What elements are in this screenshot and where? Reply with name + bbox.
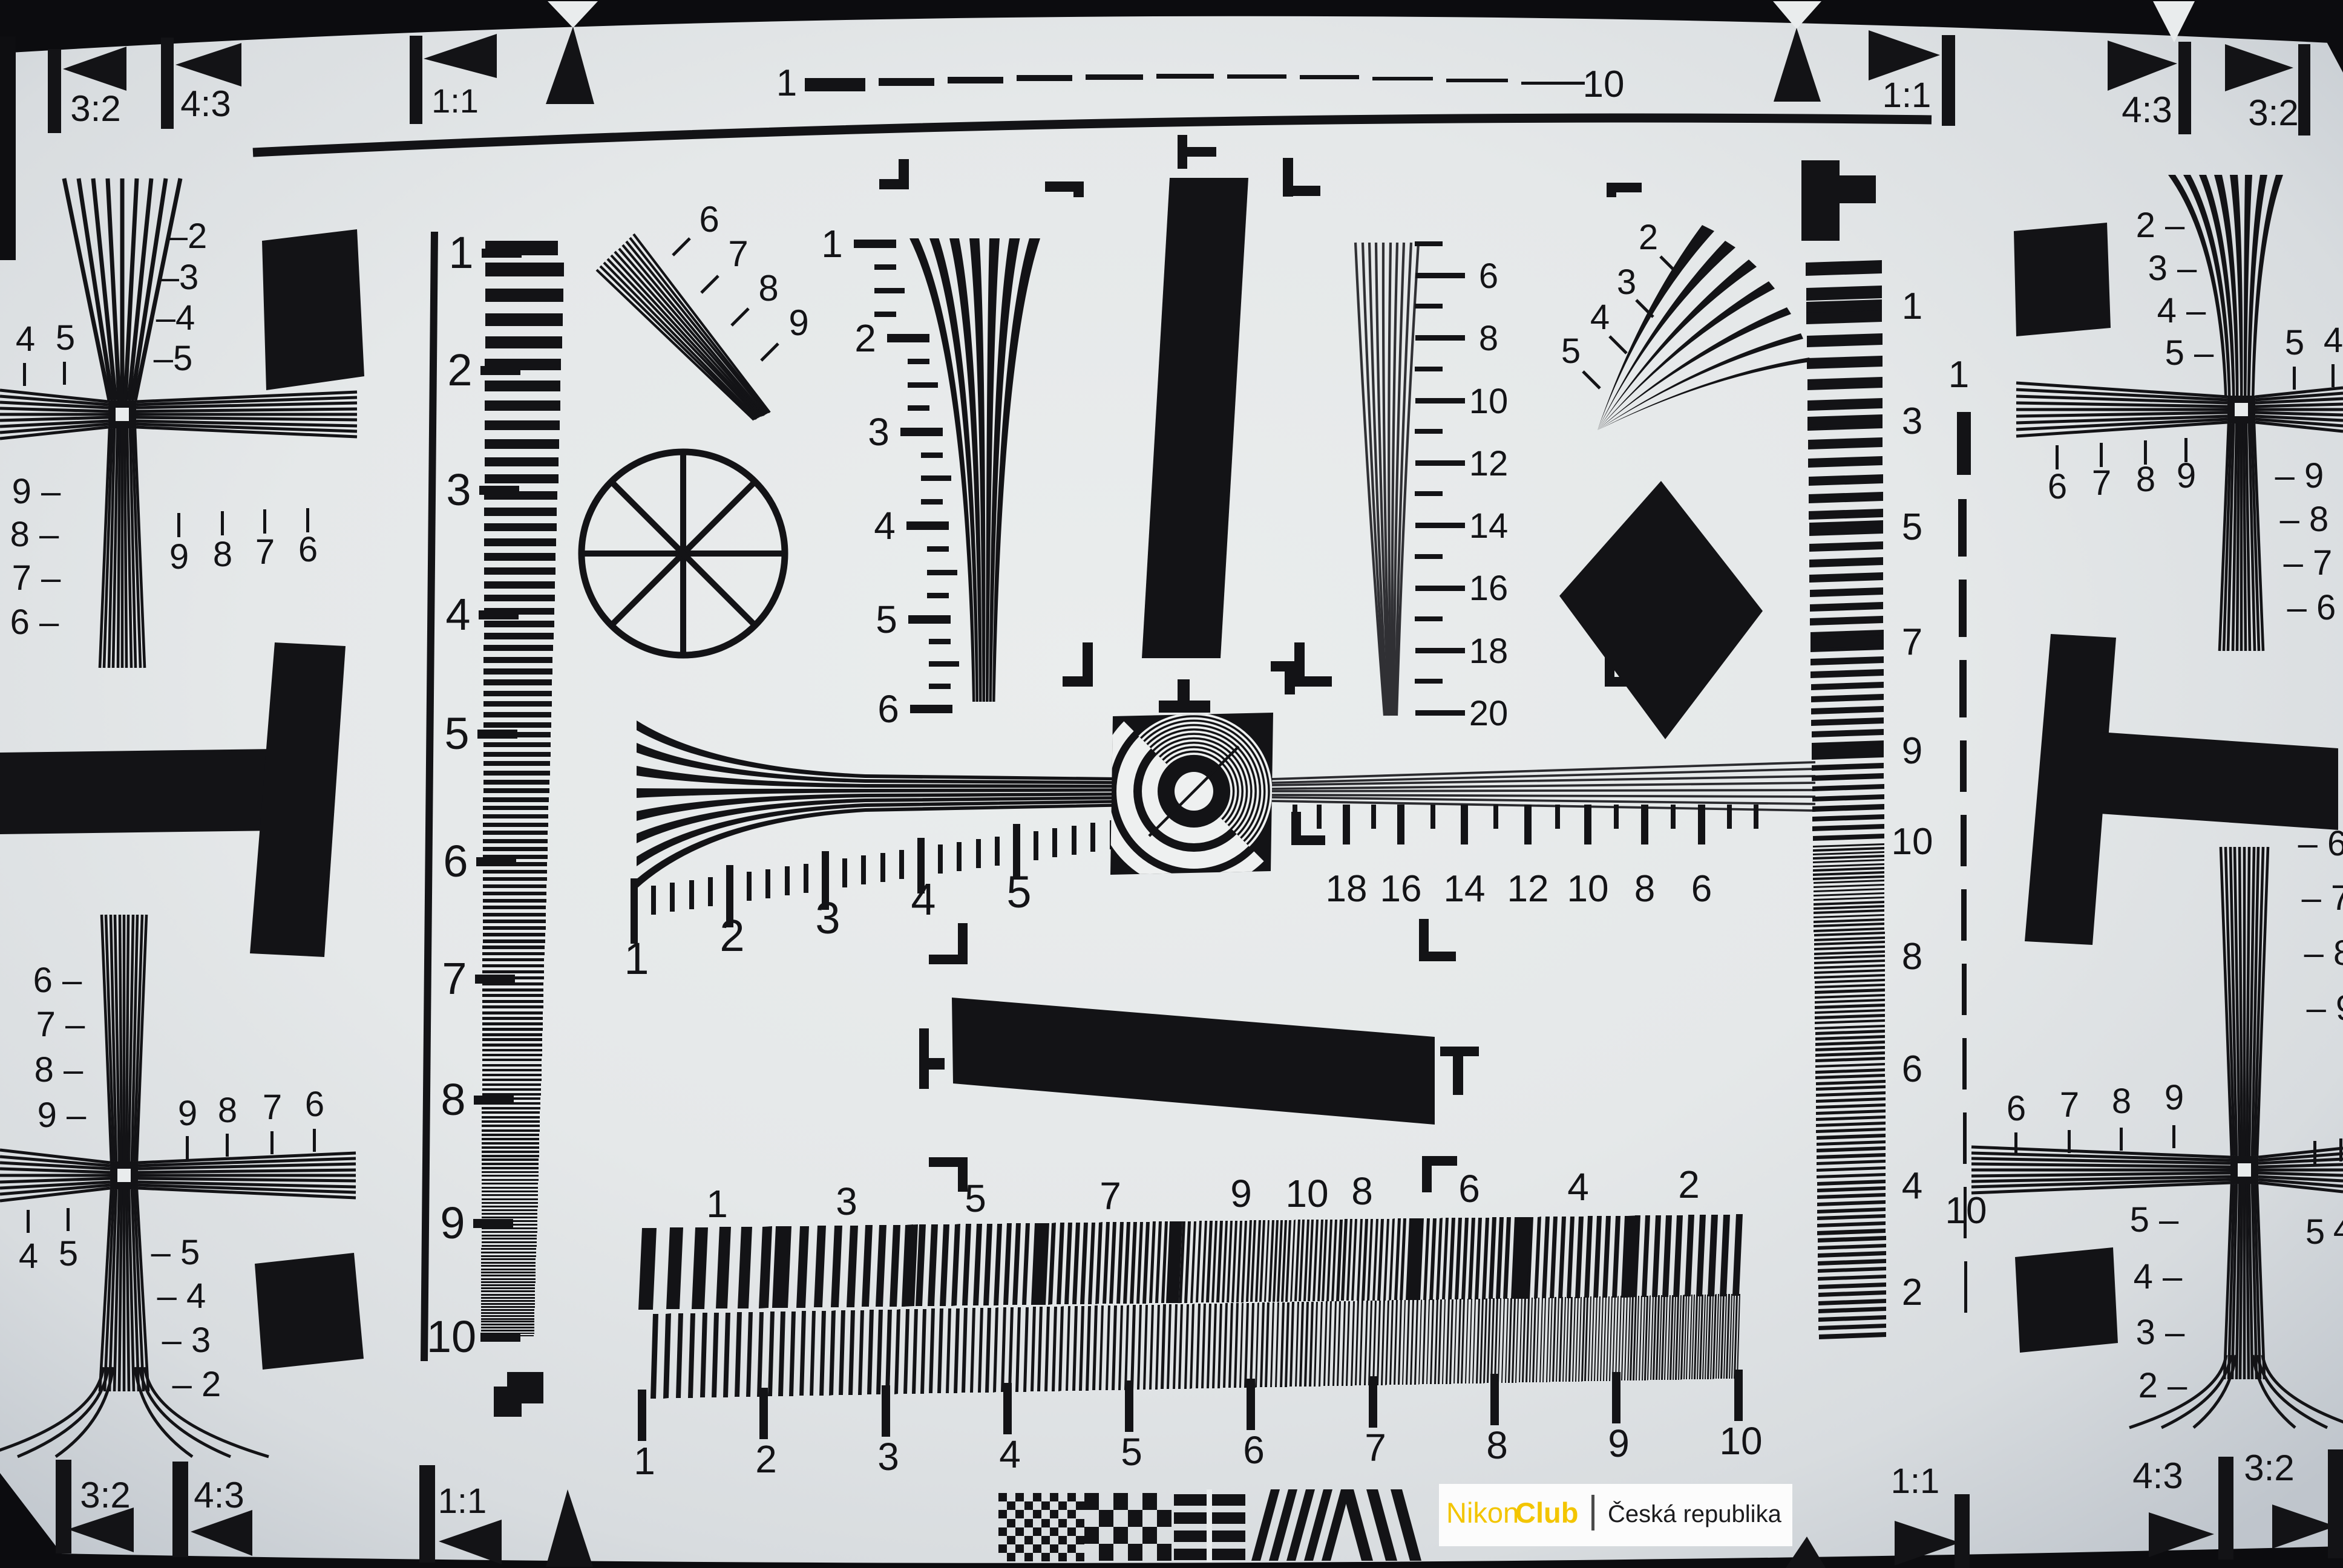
svg-text:4 –: 4 – <box>2134 1257 2183 1296</box>
svg-text:9: 9 <box>1230 1172 1252 1215</box>
svg-text:20: 20 <box>1469 694 1509 733</box>
svg-text:– 3: – 3 <box>162 1321 211 1360</box>
svg-text:2: 2 <box>755 1437 777 1481</box>
svg-text:4: 4 <box>911 874 936 924</box>
svg-text:2 –: 2 – <box>2138 1366 2187 1405</box>
svg-text:– 5: – 5 <box>151 1233 200 1272</box>
svg-text:5: 5 <box>1902 506 1922 548</box>
svg-text:6: 6 <box>2007 1089 2026 1128</box>
svg-text:5: 5 <box>56 318 75 358</box>
svg-text:10: 10 <box>1583 64 1625 105</box>
svg-text:10: 10 <box>1285 1172 1328 1215</box>
svg-text:18: 18 <box>1326 868 1368 910</box>
svg-text:7: 7 <box>1902 621 1922 663</box>
svg-text:6: 6 <box>1479 256 1498 296</box>
svg-text:– 8: – 8 <box>2280 500 2329 539</box>
svg-text:5 –: 5 – <box>2165 333 2214 373</box>
svg-text:18: 18 <box>1469 632 1509 671</box>
svg-text:4:3: 4:3 <box>2132 1455 2183 1496</box>
svg-text:1: 1 <box>776 62 797 104</box>
svg-text:–4: –4 <box>156 298 195 338</box>
svg-text:10: 10 <box>1567 868 1609 910</box>
svg-text:8: 8 <box>1351 1169 1373 1213</box>
svg-text:14: 14 <box>1469 506 1509 546</box>
svg-text:6: 6 <box>1691 868 1712 910</box>
svg-text:5 –: 5 – <box>2130 1200 2179 1240</box>
svg-text:7: 7 <box>263 1088 282 1127</box>
svg-text:9: 9 <box>178 1094 197 1133</box>
svg-text:6: 6 <box>877 687 899 731</box>
svg-text:6: 6 <box>443 836 468 886</box>
svg-text:7: 7 <box>2060 1085 2079 1125</box>
svg-text:4 –: 4 – <box>2157 291 2206 330</box>
svg-text:4: 4 <box>999 1432 1021 1476</box>
svg-text:6 –: 6 – <box>33 961 82 1000</box>
svg-text:8: 8 <box>2112 1082 2131 1121</box>
svg-text:–2: –2 <box>168 217 208 256</box>
svg-text:8: 8 <box>1634 868 1655 910</box>
svg-text:4: 4 <box>1567 1165 1589 1209</box>
svg-text:– 8: – 8 <box>2304 933 2343 973</box>
svg-text:3: 3 <box>836 1180 857 1223</box>
svg-text:1:1: 1:1 <box>438 1481 487 1521</box>
svg-text:16: 16 <box>1469 569 1509 608</box>
svg-text:9: 9 <box>440 1198 465 1248</box>
svg-text:– 6: – 6 <box>2298 824 2343 863</box>
svg-text:2: 2 <box>854 316 876 360</box>
svg-text:8: 8 <box>1486 1423 1508 1467</box>
svg-text:8: 8 <box>1479 319 1498 358</box>
svg-text:– 7: – 7 <box>2302 878 2343 918</box>
svg-text:–3: –3 <box>160 258 199 297</box>
svg-text:6: 6 <box>298 530 318 569</box>
svg-text:14: 14 <box>1444 868 1486 910</box>
svg-text:6 –: 6 – <box>10 603 59 642</box>
svg-text:– 6: – 6 <box>2287 588 2336 627</box>
svg-text:3: 3 <box>1617 263 1636 302</box>
svg-text:1: 1 <box>1902 286 1922 327</box>
svg-text:6: 6 <box>1243 1428 1265 1472</box>
svg-text:8: 8 <box>2136 460 2155 499</box>
svg-text:7: 7 <box>442 953 467 1004</box>
svg-text:– 2: – 2 <box>172 1365 221 1404</box>
svg-text:4:3: 4:3 <box>180 83 231 124</box>
svg-text:3: 3 <box>1902 400 1922 442</box>
svg-text:5: 5 <box>444 708 469 759</box>
svg-text:–5: –5 <box>154 339 193 378</box>
svg-text:2: 2 <box>1678 1163 1700 1206</box>
svg-text:3:2: 3:2 <box>80 1475 130 1515</box>
svg-text:– 9: – 9 <box>2275 456 2324 495</box>
svg-text:3:2: 3:2 <box>2244 1448 2294 1488</box>
svg-text:– 9: – 9 <box>2307 988 2343 1028</box>
svg-text:7: 7 <box>1099 1174 1121 1218</box>
svg-text:9: 9 <box>1608 1422 1630 1465</box>
svg-text:12: 12 <box>1507 868 1549 910</box>
svg-text:2 –: 2 – <box>2136 206 2185 245</box>
svg-text:1: 1 <box>624 933 649 984</box>
svg-text:6: 6 <box>699 199 719 240</box>
svg-text:1: 1 <box>821 222 843 266</box>
svg-text:8 –: 8 – <box>34 1050 84 1089</box>
svg-text:1:1: 1:1 <box>1883 76 1932 115</box>
svg-text:7 –: 7 – <box>36 1005 85 1044</box>
svg-text:2: 2 <box>719 910 744 961</box>
svg-text:1: 1 <box>1948 354 1969 396</box>
svg-text:9: 9 <box>2164 1078 2184 1117</box>
svg-text:5: 5 <box>2285 323 2304 362</box>
svg-text:3 –: 3 – <box>2136 1313 2185 1352</box>
svg-text:10: 10 <box>1945 1190 1987 1232</box>
svg-text:1: 1 <box>448 227 473 278</box>
svg-text:4: 4 <box>874 504 896 547</box>
svg-text:5: 5 <box>59 1234 78 1273</box>
svg-text:4: 4 <box>445 589 470 639</box>
svg-text:– 7: – 7 <box>2284 543 2333 583</box>
svg-text:Nikon: Nikon <box>1446 1497 1519 1529</box>
svg-text:9: 9 <box>1902 730 1922 772</box>
svg-text:7: 7 <box>1365 1426 1386 1469</box>
svg-text:5: 5 <box>965 1177 986 1220</box>
svg-text:3: 3 <box>868 410 890 454</box>
svg-text:2: 2 <box>447 345 472 395</box>
svg-text:9 –: 9 – <box>12 472 61 511</box>
svg-text:3:2: 3:2 <box>2248 93 2298 133</box>
svg-text:9: 9 <box>788 302 808 343</box>
svg-text:6: 6 <box>1902 1048 1922 1090</box>
svg-text:4: 4 <box>19 1236 38 1276</box>
svg-text:4: 4 <box>16 319 35 359</box>
svg-text:7: 7 <box>255 532 275 572</box>
svg-text:5: 5 <box>1121 1430 1142 1474</box>
svg-text:9 –: 9 – <box>38 1096 87 1135</box>
svg-text:8: 8 <box>218 1091 237 1130</box>
svg-text:10: 10 <box>427 1312 476 1362</box>
svg-text:– 4: – 4 <box>157 1276 206 1316</box>
svg-text:1:1: 1:1 <box>431 82 479 120</box>
svg-text:4: 4 <box>2324 321 2343 360</box>
svg-text:3 –: 3 – <box>2148 249 2197 288</box>
svg-text:3: 3 <box>446 465 471 515</box>
svg-text:10: 10 <box>1469 382 1509 421</box>
svg-text:6: 6 <box>1458 1167 1480 1210</box>
svg-text:7 –: 7 – <box>12 558 61 598</box>
svg-text:5: 5 <box>1561 332 1581 371</box>
svg-text:2: 2 <box>1639 218 1658 257</box>
svg-text:5: 5 <box>1006 867 1031 917</box>
svg-text:1: 1 <box>706 1182 728 1226</box>
svg-text:12: 12 <box>1469 444 1509 483</box>
svg-text:6: 6 <box>2048 467 2067 506</box>
svg-text:5: 5 <box>2305 1212 2325 1252</box>
svg-text:4: 4 <box>2333 1210 2343 1249</box>
svg-text:5: 5 <box>876 598 897 641</box>
svg-text:8 –: 8 – <box>10 515 59 554</box>
svg-text:1: 1 <box>634 1439 655 1483</box>
svg-text:9: 9 <box>169 537 189 577</box>
svg-text:3: 3 <box>877 1435 899 1478</box>
svg-text:4: 4 <box>1902 1165 1922 1207</box>
svg-text:16: 16 <box>1380 868 1422 910</box>
svg-text:4:3: 4:3 <box>194 1475 244 1515</box>
svg-text:8: 8 <box>758 268 778 309</box>
svg-text:Club: Club <box>1515 1497 1578 1529</box>
svg-text:1:1: 1:1 <box>1891 1462 1940 1501</box>
svg-text:7: 7 <box>2092 463 2111 503</box>
svg-text:6: 6 <box>305 1085 324 1124</box>
svg-text:4: 4 <box>1590 298 1610 337</box>
svg-text:Česká republika: Česká republika <box>1608 1500 1782 1527</box>
svg-text:3:2: 3:2 <box>70 88 120 129</box>
svg-text:7: 7 <box>728 234 748 274</box>
svg-text:8: 8 <box>213 535 232 574</box>
svg-text:3: 3 <box>815 893 840 943</box>
svg-text:8: 8 <box>1902 936 1922 978</box>
svg-text:10: 10 <box>1719 1419 1762 1463</box>
svg-text:2: 2 <box>1902 1272 1922 1313</box>
svg-text:8: 8 <box>441 1074 465 1125</box>
svg-text:4:3: 4:3 <box>2122 90 2172 130</box>
svg-text:10: 10 <box>1892 821 1933 863</box>
